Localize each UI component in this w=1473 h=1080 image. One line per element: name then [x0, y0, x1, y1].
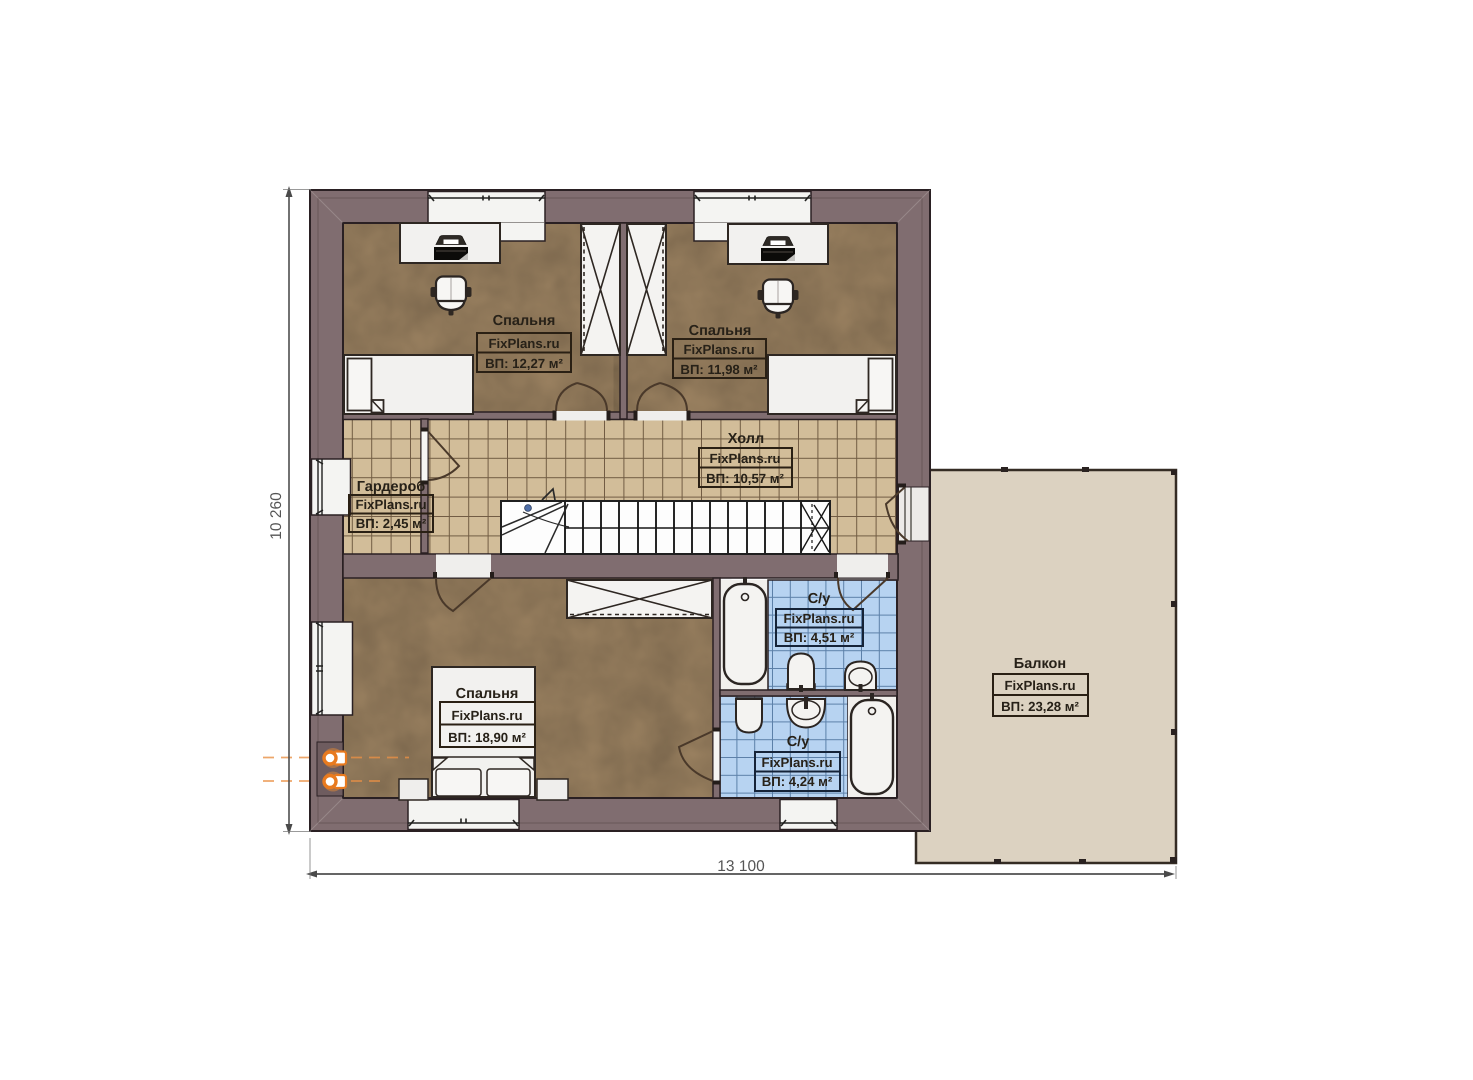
svg-text:Балкон: Балкон — [1014, 656, 1066, 672]
svg-text:FixPlans.ru: FixPlans.ru — [709, 451, 780, 466]
svg-text:FixPlans.ru: FixPlans.ru — [683, 342, 754, 357]
svg-text:С/у: С/у — [808, 591, 831, 607]
svg-text:FixPlans.ru: FixPlans.ru — [1004, 678, 1075, 693]
svg-text:FixPlans.ru: FixPlans.ru — [355, 497, 426, 512]
svg-text:ВП: 4,51 м²: ВП: 4,51 м² — [784, 630, 855, 645]
svg-text:ВП: 4,24 м²: ВП: 4,24 м² — [762, 774, 833, 789]
svg-text:ВП: 18,90 м²: ВП: 18,90 м² — [448, 730, 526, 745]
svg-text:FixPlans.ru: FixPlans.ru — [488, 336, 559, 351]
svg-text:ВП: 11,98 м²: ВП: 11,98 м² — [680, 362, 758, 377]
svg-text:FixPlans.ru: FixPlans.ru — [761, 755, 832, 770]
svg-text:Гардероб: Гардероб — [357, 479, 426, 495]
svg-text:FixPlans.ru: FixPlans.ru — [451, 708, 522, 723]
svg-text:Спальня: Спальня — [456, 686, 519, 702]
svg-text:FixPlans.ru: FixPlans.ru — [783, 611, 854, 626]
svg-text:Спальня: Спальня — [689, 323, 752, 339]
svg-text:13 100: 13 100 — [717, 858, 765, 875]
svg-text:ВП: 10,57 м²: ВП: 10,57 м² — [706, 471, 784, 486]
svg-text:Холл: Холл — [728, 431, 764, 447]
svg-text:Спальня: Спальня — [493, 313, 556, 329]
svg-text:С/у: С/у — [787, 734, 810, 750]
svg-text:ВП: 12,27 м²: ВП: 12,27 м² — [485, 356, 563, 371]
svg-text:10 260: 10 260 — [268, 492, 285, 540]
svg-text:ВП: 23,28 м²: ВП: 23,28 м² — [1001, 699, 1079, 714]
svg-text:ВП: 2,45 м²: ВП: 2,45 м² — [356, 516, 427, 531]
